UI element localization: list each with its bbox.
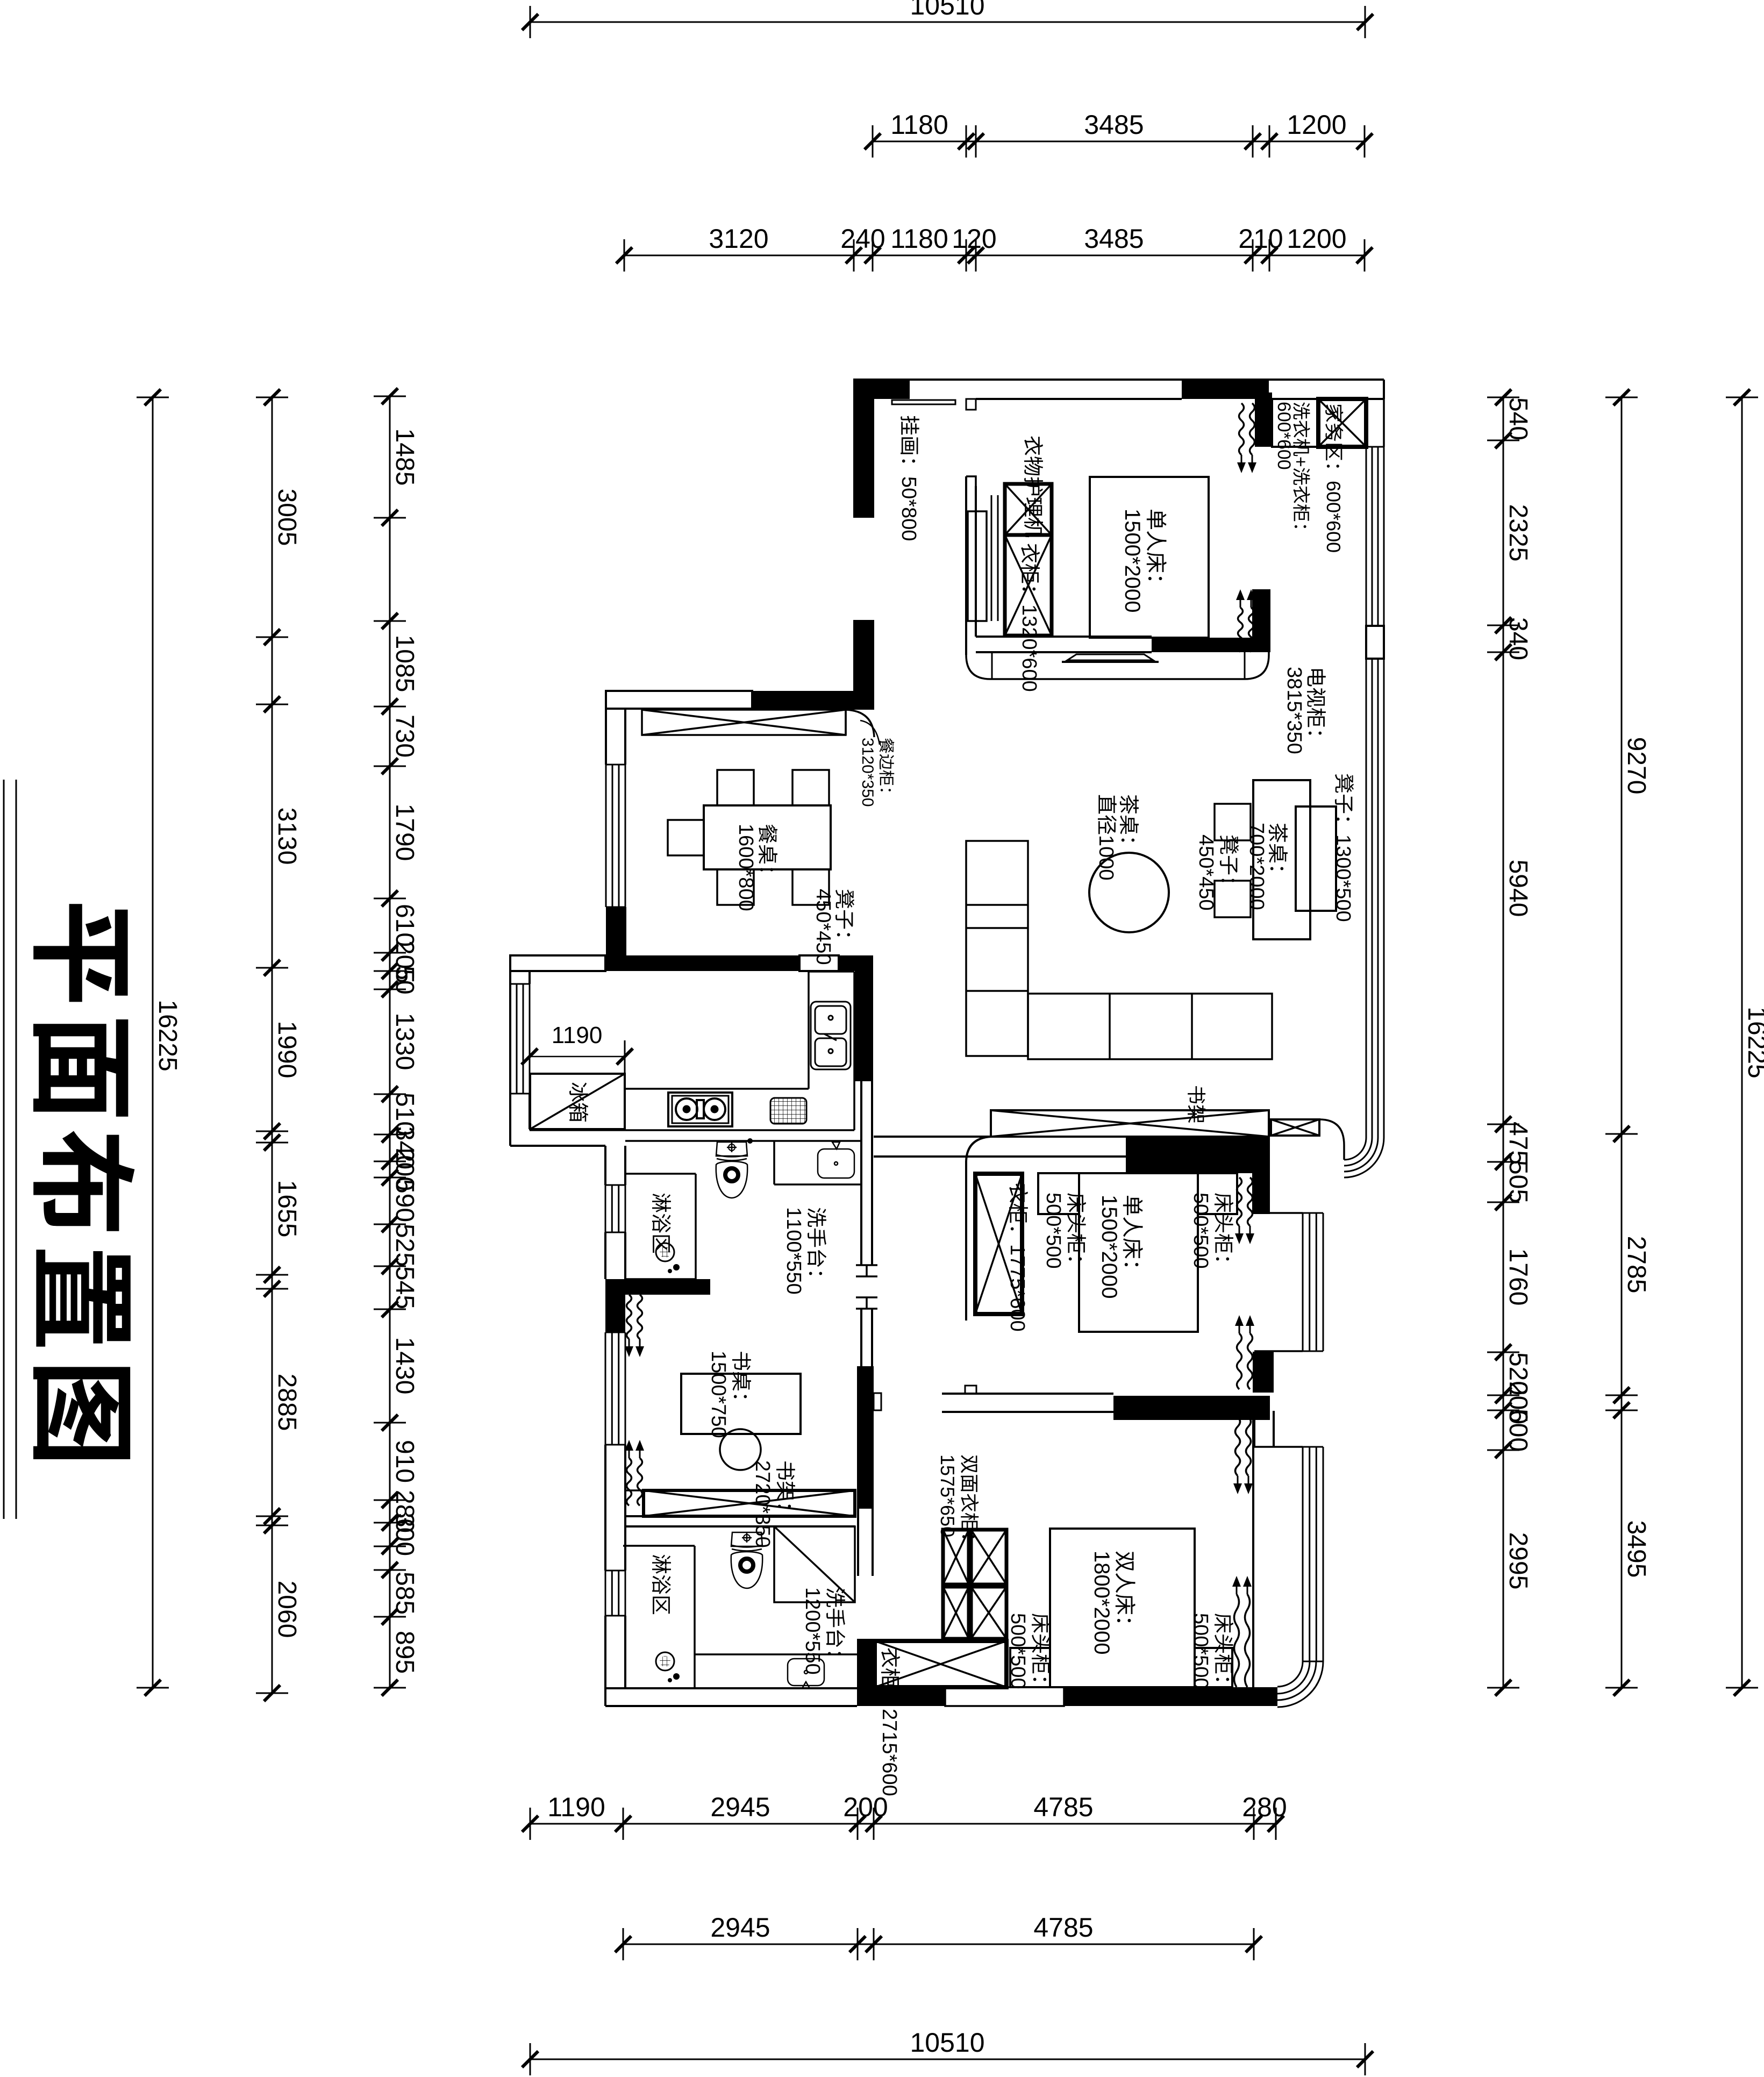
svg-text:505: 505 [1504,1160,1532,1203]
svg-text:3495: 3495 [1622,1521,1651,1578]
svg-text:1200: 1200 [1287,224,1346,254]
svg-text:16225: 16225 [1742,1007,1764,1078]
svg-text:2060: 2060 [273,1581,301,1638]
svg-text:3485: 3485 [1084,224,1144,254]
svg-text:1180: 1180 [890,224,948,254]
svg-text:16225: 16225 [153,1000,182,1071]
svg-text:545: 545 [390,1266,419,1309]
svg-text:1190: 1190 [552,1022,603,1048]
svg-text:1485: 1485 [390,429,419,486]
svg-text:300: 300 [390,1513,419,1556]
svg-text:3120: 3120 [709,224,768,254]
svg-text:1190: 1190 [547,1792,605,1822]
svg-text:240: 240 [840,224,885,254]
svg-text:1180: 1180 [890,110,948,140]
svg-text:2325: 2325 [1504,504,1532,562]
svg-text:2945: 2945 [710,1792,770,1822]
svg-text:525: 525 [390,1224,419,1267]
svg-text:120: 120 [952,224,996,254]
svg-text:2785: 2785 [1622,1236,1651,1294]
svg-text:1085: 1085 [390,635,419,693]
svg-text:1990: 1990 [273,1021,301,1079]
svg-text:200: 200 [843,1792,888,1822]
svg-text:895: 895 [390,1631,419,1674]
svg-text:910: 910 [390,1440,419,1483]
svg-text:2995: 2995 [1504,1532,1532,1590]
svg-text:3485: 3485 [1084,110,1144,140]
svg-text:2945: 2945 [710,1912,770,1943]
svg-text:590: 590 [390,1179,419,1222]
svg-text:4785: 4785 [1033,1912,1093,1943]
svg-text:4785: 4785 [1033,1792,1093,1822]
svg-text:3130: 3130 [273,808,301,865]
svg-text:500: 500 [1504,1409,1532,1452]
svg-text:1790: 1790 [390,804,419,861]
svg-text:280: 280 [1242,1792,1287,1822]
svg-text:50: 50 [390,966,419,994]
svg-text:9270: 9270 [1622,737,1651,795]
svg-text:730: 730 [390,715,419,758]
svg-text:1200: 1200 [1287,110,1346,140]
svg-text:1760: 1760 [1504,1248,1532,1306]
svg-text:1330: 1330 [390,1013,419,1070]
svg-text:5940: 5940 [1504,860,1532,917]
svg-text:210: 210 [1238,224,1283,254]
svg-text:1430: 1430 [390,1337,419,1395]
svg-text:2885: 2885 [273,1374,301,1431]
svg-text:1655: 1655 [273,1180,301,1238]
svg-text:540: 540 [1504,397,1532,440]
svg-text:585: 585 [390,1572,419,1615]
svg-text:475: 475 [1504,1122,1532,1165]
svg-text:10510: 10510 [910,0,984,20]
svg-text:3005: 3005 [273,489,301,546]
svg-text:10510: 10510 [910,2028,984,2058]
svg-text:340: 340 [1504,617,1532,660]
